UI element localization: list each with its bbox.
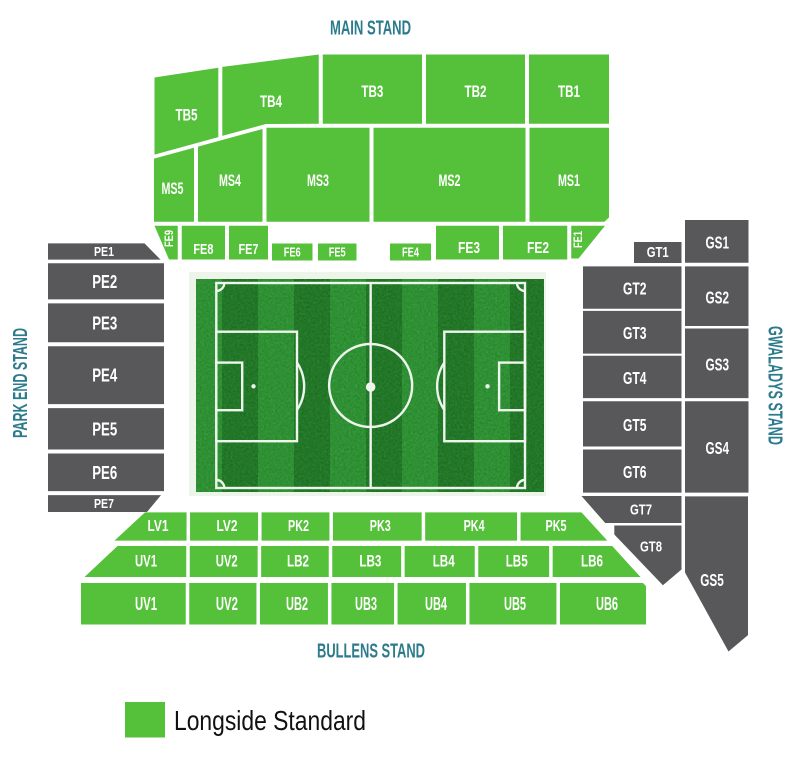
svg-text:MAIN STAND: MAIN STAND	[330, 18, 411, 40]
svg-text:GT4: GT4	[623, 368, 647, 388]
svg-text:LB5: LB5	[506, 553, 528, 571]
svg-text:UV1: UV1	[135, 553, 157, 571]
svg-text:MS2: MS2	[439, 172, 461, 190]
svg-text:LB2: LB2	[287, 553, 309, 571]
svg-text:GWALADYS STAND: GWALADYS STAND	[764, 326, 786, 445]
svg-text:PE3: PE3	[92, 313, 117, 333]
svg-text:MS1: MS1	[558, 172, 580, 190]
svg-text:LV2: LV2	[217, 518, 238, 535]
svg-text:PK3: PK3	[370, 518, 391, 535]
svg-text:GT8: GT8	[640, 539, 662, 556]
svg-text:Longside Standard: Longside Standard	[174, 705, 366, 736]
svg-text:GS5: GS5	[700, 570, 724, 590]
svg-text:GT3: GT3	[623, 323, 647, 343]
svg-text:PK2: PK2	[288, 518, 309, 535]
svg-text:BULLENS STAND: BULLENS STAND	[317, 641, 425, 663]
svg-text:UB5: UB5	[504, 593, 526, 614]
svg-text:MS4: MS4	[219, 172, 242, 190]
svg-text:PK4: PK4	[464, 518, 485, 535]
svg-text:GT6: GT6	[623, 462, 647, 482]
svg-text:PE5: PE5	[92, 419, 117, 439]
svg-text:FE1: FE1	[573, 231, 585, 248]
svg-text:FE3: FE3	[458, 240, 480, 257]
svg-text:PE7: PE7	[94, 496, 114, 511]
svg-text:TB5: TB5	[176, 107, 198, 125]
svg-text:PE6: PE6	[92, 463, 117, 483]
svg-text:FE5: FE5	[329, 245, 346, 259]
svg-text:GS1: GS1	[706, 232, 730, 252]
svg-text:LB6: LB6	[581, 553, 603, 571]
svg-text:UB3: UB3	[355, 593, 377, 614]
svg-text:UV1: UV1	[135, 593, 157, 614]
svg-text:FE7: FE7	[239, 241, 259, 258]
svg-text:LB4: LB4	[433, 553, 456, 571]
svg-text:PE1: PE1	[94, 244, 114, 259]
svg-text:GS3: GS3	[706, 354, 730, 374]
svg-text:UB6: UB6	[596, 593, 618, 614]
svg-text:MS3: MS3	[307, 172, 329, 190]
svg-text:MS5: MS5	[162, 180, 184, 198]
svg-text:FE4: FE4	[402, 245, 419, 259]
svg-text:TB4: TB4	[260, 93, 283, 111]
svg-text:UV2: UV2	[216, 593, 238, 614]
svg-text:LV1: LV1	[148, 518, 169, 535]
svg-text:FE8: FE8	[193, 241, 213, 258]
svg-text:TB1: TB1	[558, 83, 580, 101]
svg-text:GT2: GT2	[623, 279, 647, 299]
svg-text:PARK END STAND: PARK END STAND	[10, 328, 32, 438]
svg-text:UB2: UB2	[286, 593, 308, 614]
svg-text:GT1: GT1	[647, 244, 669, 261]
svg-text:FE6: FE6	[284, 245, 301, 259]
svg-text:UB4: UB4	[425, 593, 447, 614]
svg-text:GS4: GS4	[706, 438, 730, 458]
svg-text:TB2: TB2	[465, 83, 487, 101]
svg-text:LB3: LB3	[359, 553, 381, 571]
svg-text:PE4: PE4	[92, 366, 117, 386]
svg-text:UV2: UV2	[216, 553, 238, 571]
svg-text:PE2: PE2	[92, 272, 117, 292]
svg-text:TB3: TB3	[361, 83, 383, 101]
svg-text:FE2: FE2	[527, 240, 549, 257]
svg-text:GT5: GT5	[623, 415, 647, 435]
svg-text:GT7: GT7	[630, 501, 652, 518]
svg-text:FE9: FE9	[164, 230, 176, 247]
svg-text:GS2: GS2	[706, 288, 730, 308]
svg-text:PK5: PK5	[546, 518, 567, 535]
